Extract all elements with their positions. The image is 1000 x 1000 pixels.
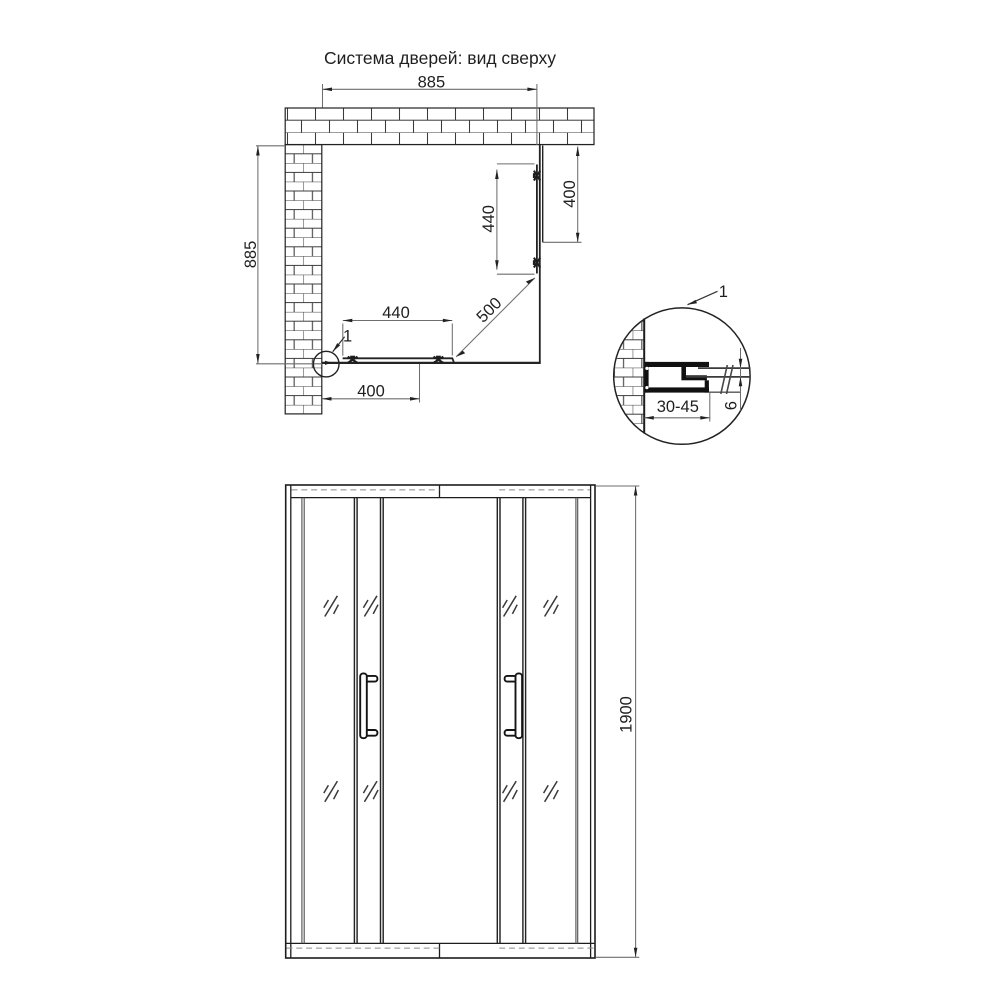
svg-text:1: 1: [719, 283, 728, 301]
svg-text:400: 400: [561, 180, 579, 208]
svg-text:885: 885: [418, 73, 446, 91]
svg-text:400: 400: [357, 382, 385, 400]
svg-text:1: 1: [343, 327, 352, 345]
svg-text:440: 440: [480, 205, 498, 233]
svg-text:440: 440: [382, 304, 410, 322]
svg-text:885: 885: [242, 241, 260, 269]
svg-text:6: 6: [723, 401, 741, 410]
svg-text:500: 500: [473, 294, 505, 326]
svg-text:30-45: 30-45: [657, 398, 699, 416]
svg-text:1900: 1900: [618, 696, 636, 733]
svg-text:Система дверей: вид сверху: Система дверей: вид сверху: [324, 48, 556, 68]
